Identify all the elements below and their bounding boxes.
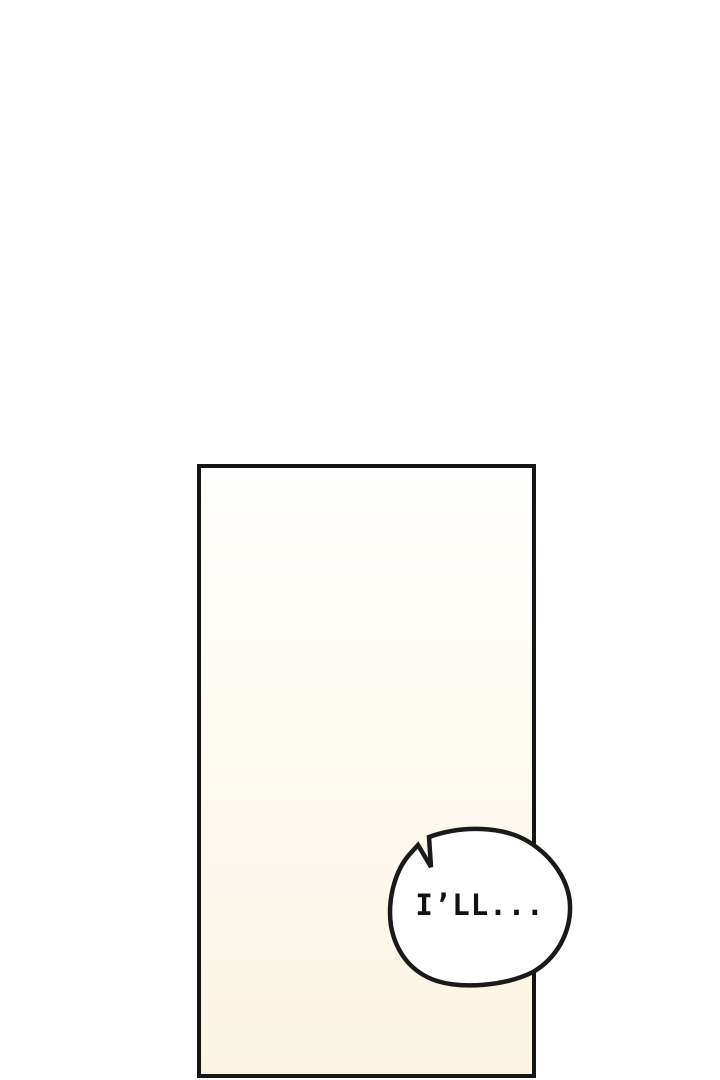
speech-bubble-text: I’LL... xyxy=(398,888,562,922)
comic-artwork xyxy=(0,0,720,1080)
comic-page: I’LL... xyxy=(0,0,720,1080)
